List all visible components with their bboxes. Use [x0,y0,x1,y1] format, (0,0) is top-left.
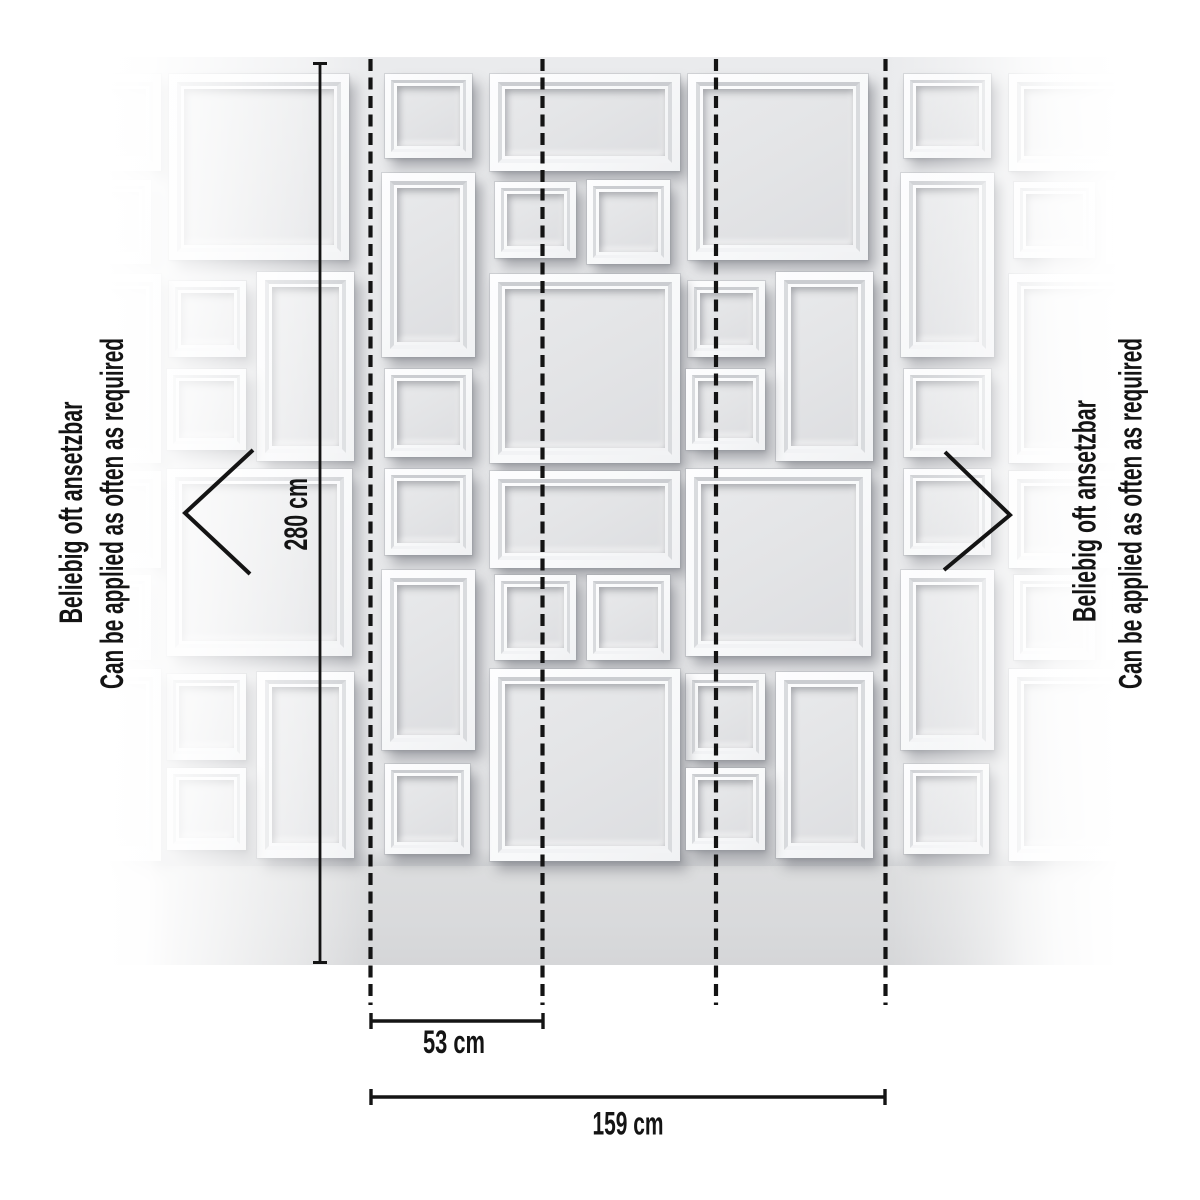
svg-text:159 cm: 159 cm [593,1106,664,1142]
svg-text:Beliebig oft ansetzbar: Beliebig oft ansetzbar [1067,400,1103,622]
svg-text:Can be applied as often as req: Can be applied as often as required [1113,338,1149,689]
svg-text:Can be applied as often as req: Can be applied as often as required [94,338,130,689]
svg-text:Beliebig oft ansetzbar: Beliebig oft ansetzbar [53,402,89,624]
svg-text:53 cm: 53 cm [423,1024,485,1060]
svg-text:280 cm: 280 cm [278,478,314,551]
